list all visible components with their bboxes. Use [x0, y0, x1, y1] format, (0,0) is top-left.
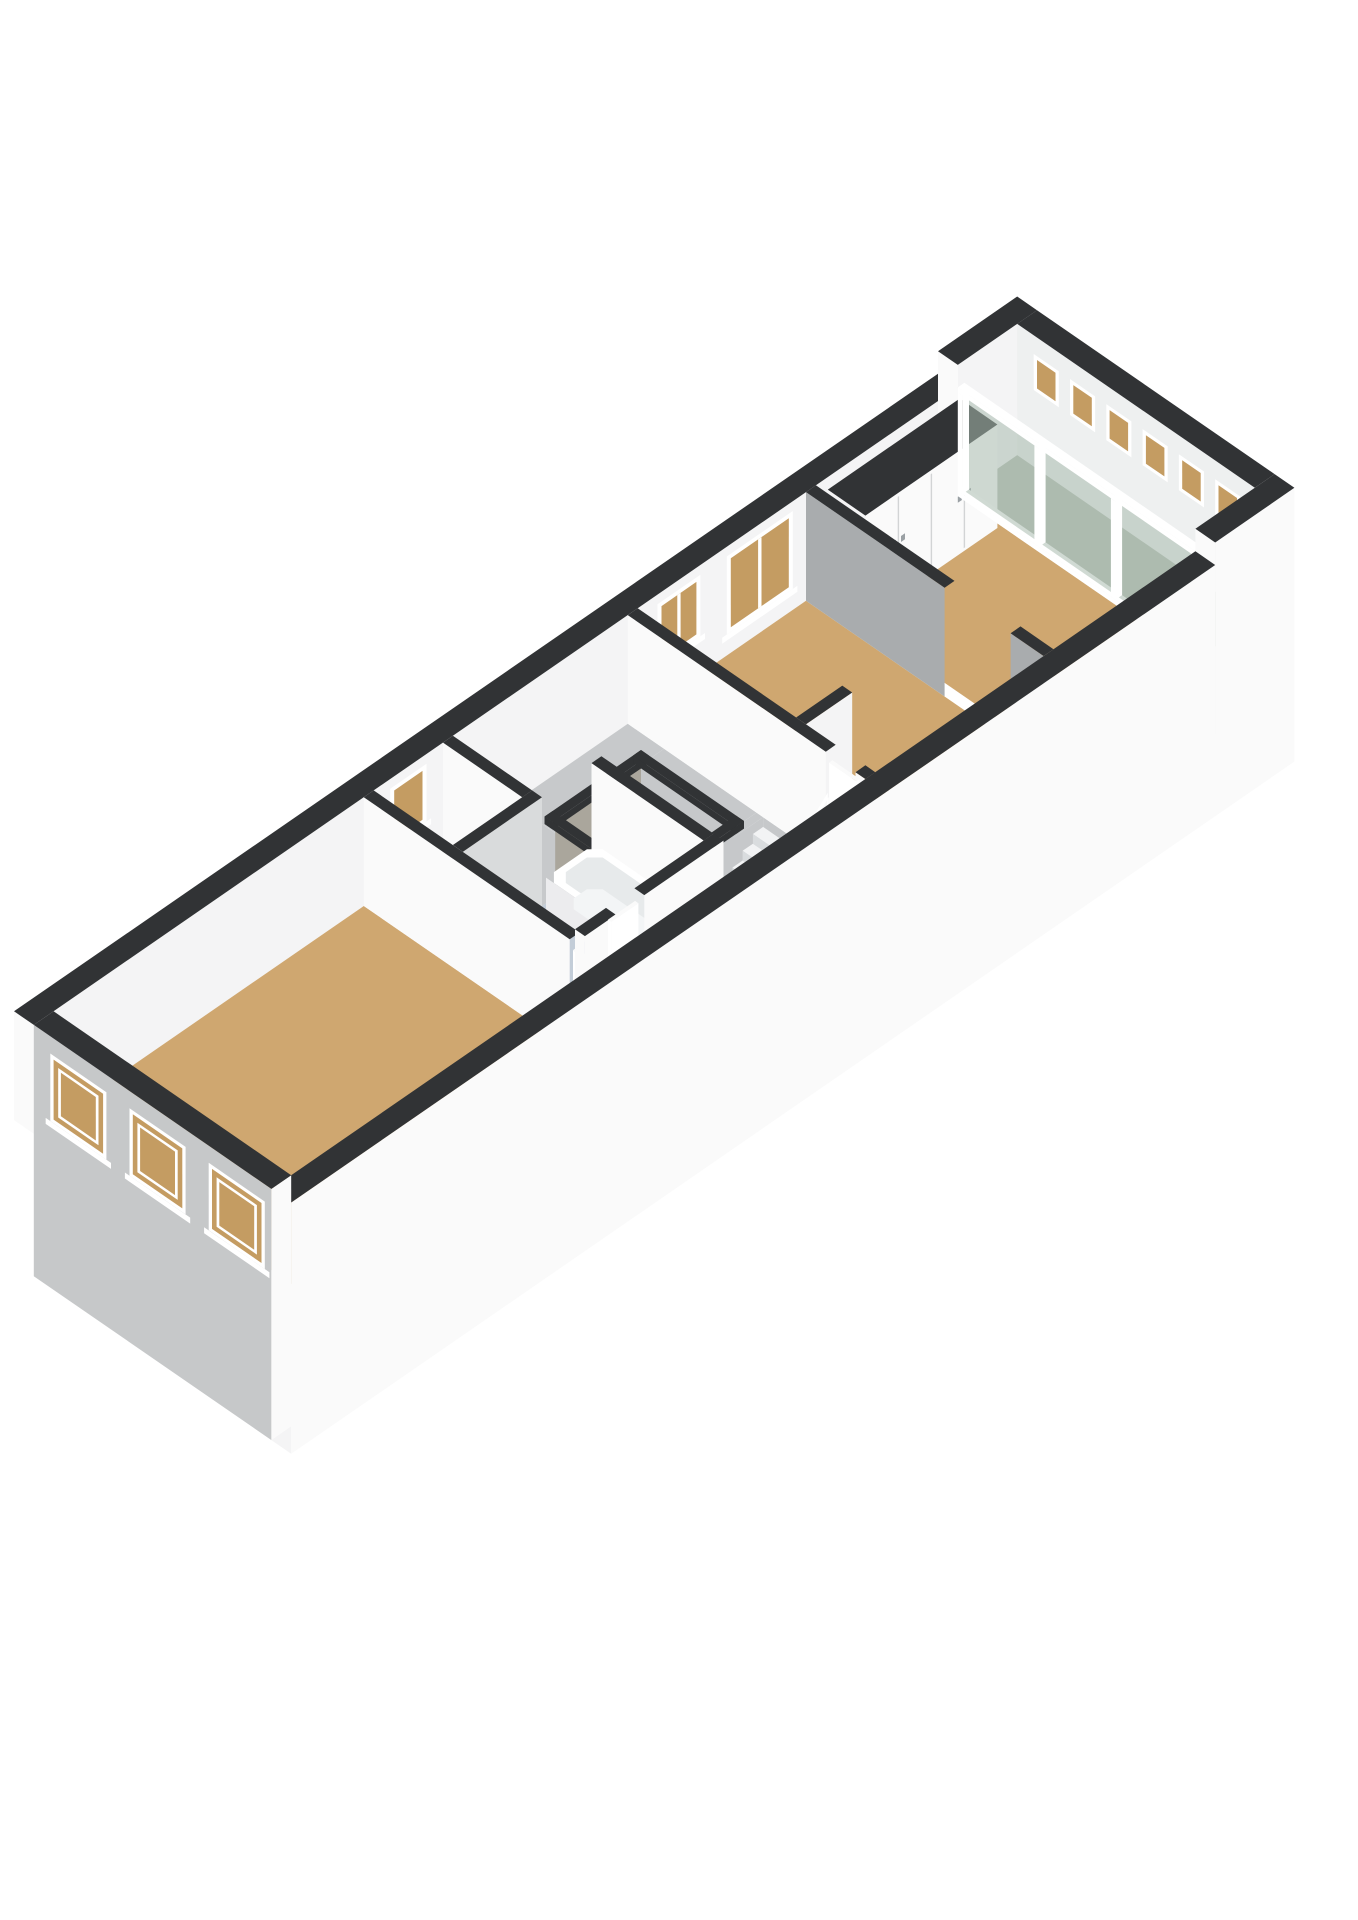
floorplan-canvas: [0, 0, 1358, 1920]
floorplan-3d-render: [0, 0, 1358, 1920]
